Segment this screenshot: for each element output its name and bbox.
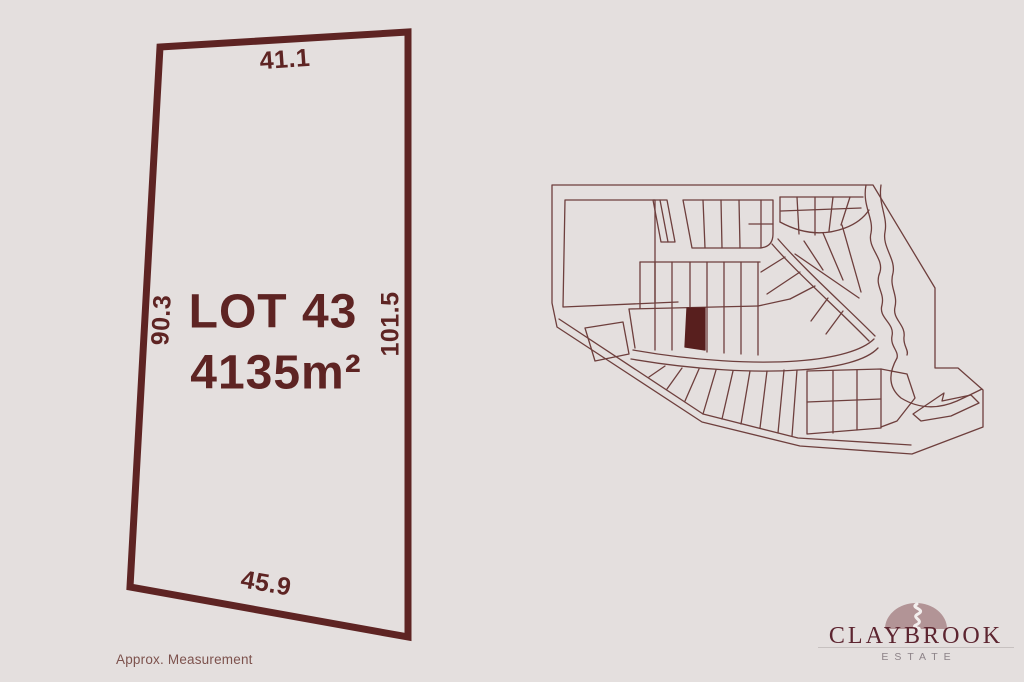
- lot-number-label: LOT 43: [189, 285, 358, 340]
- estate-boundary: [552, 185, 983, 454]
- highlighted-lot: [685, 308, 705, 350]
- map-large-block: [563, 200, 655, 307]
- creek-line: [865, 185, 897, 358]
- logo-divider: [818, 647, 1014, 648]
- lot-area-label: 4135m²: [190, 346, 361, 401]
- claybrook-logo: CLAYBROOK ESTATE: [816, 596, 1016, 668]
- approx-measurement-note: Approx. Measurement: [116, 652, 253, 667]
- estate-map: [545, 178, 990, 463]
- dimension-right: 101.5: [377, 291, 406, 356]
- logo-name: CLAYBROOK: [816, 623, 1016, 650]
- peninsula-shape: [913, 393, 979, 421]
- logo-subtitle: ESTATE: [816, 651, 1016, 663]
- dimension-left: 90.3: [146, 294, 178, 346]
- dimension-top: 41.1: [259, 44, 312, 76]
